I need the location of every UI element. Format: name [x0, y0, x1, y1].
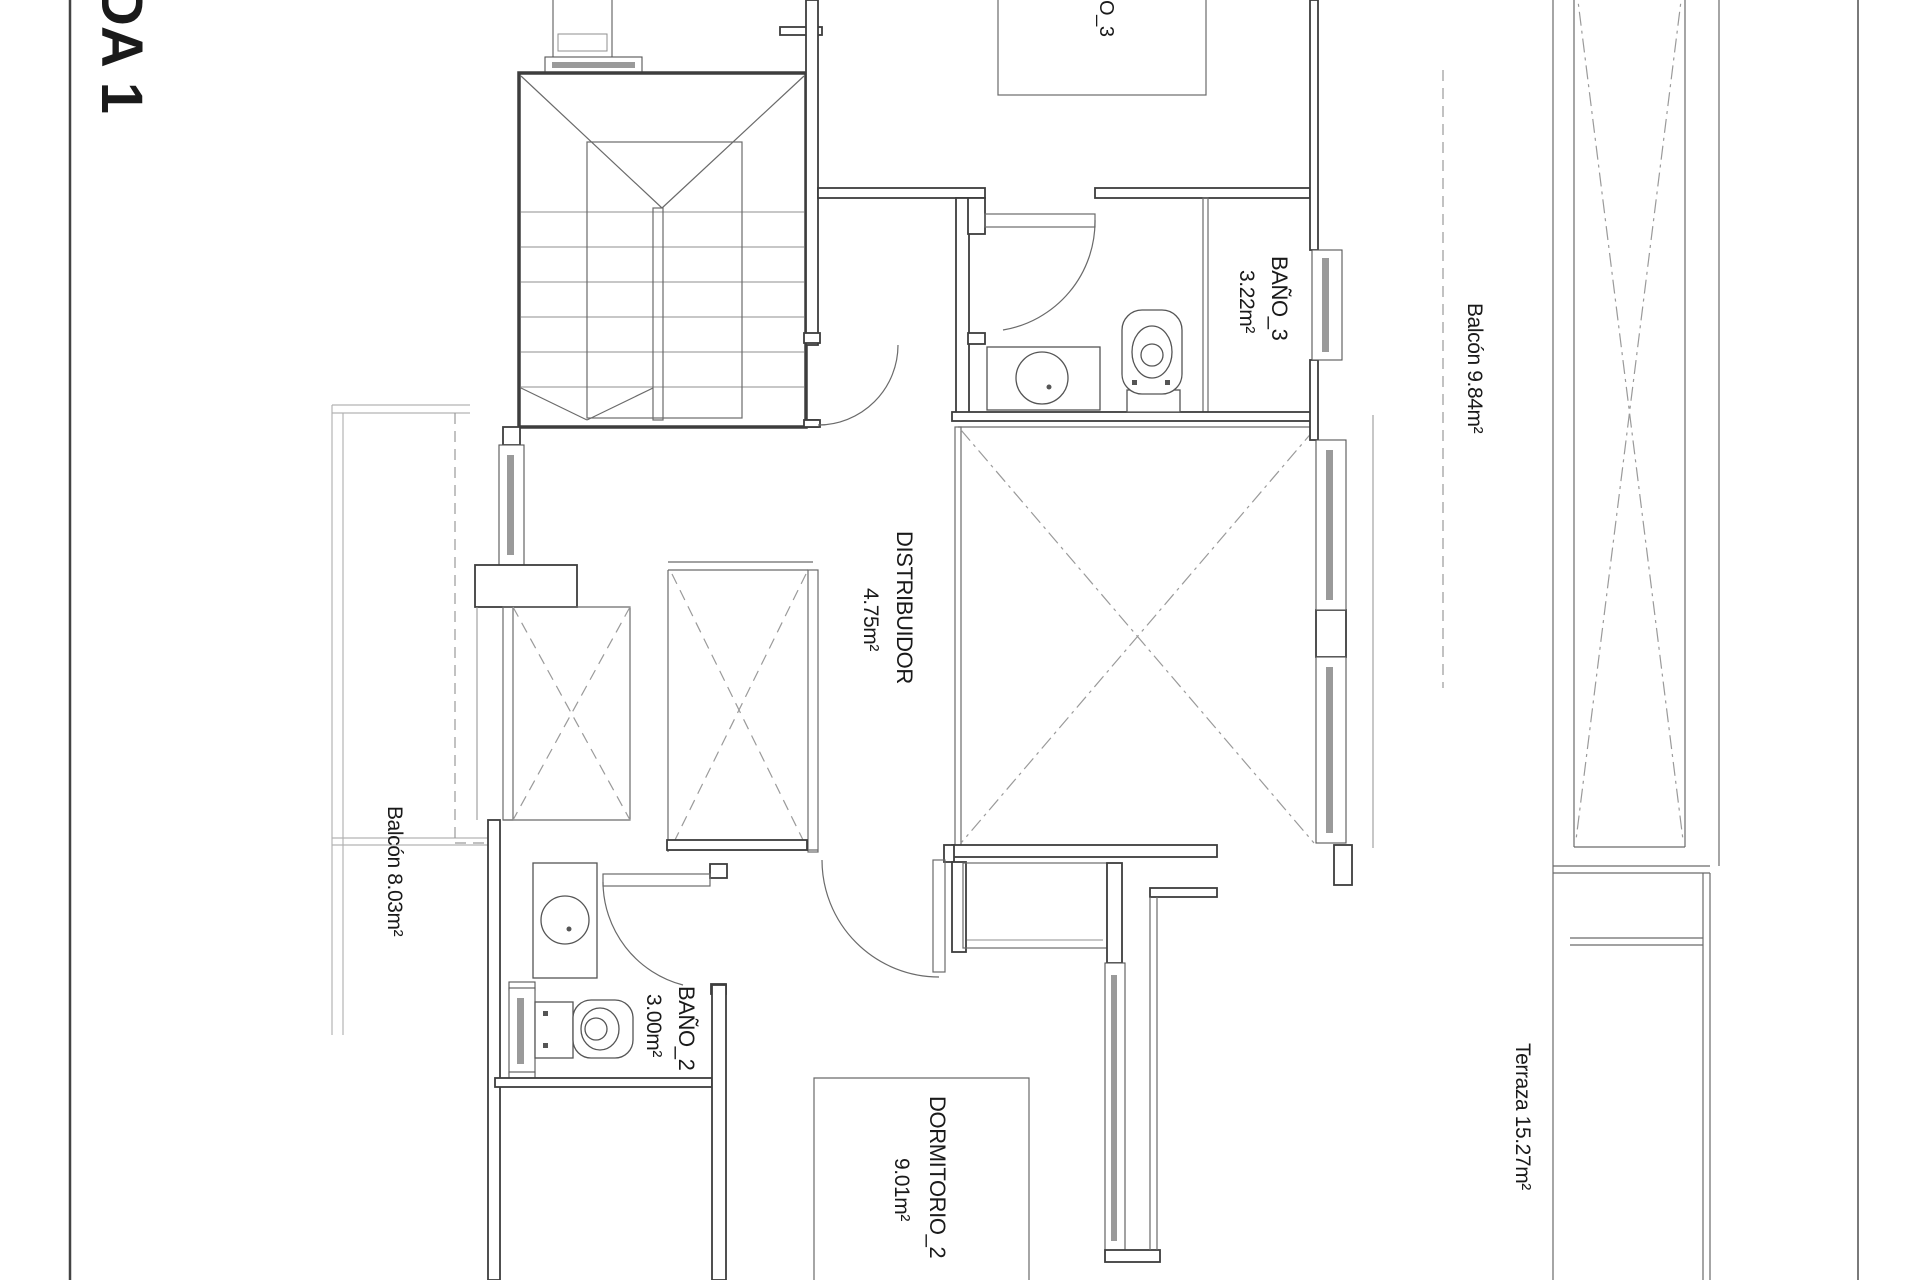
sink-icon — [987, 347, 1100, 410]
window-icon — [499, 445, 524, 565]
wall-segment — [818, 188, 985, 198]
staircase — [519, 0, 806, 427]
wardrobe-right — [668, 562, 818, 852]
balcon-left: Balcón 8.03m² — [332, 405, 490, 1035]
room-label-bano3: BAÑO_3 — [1267, 256, 1292, 341]
window-icon — [509, 982, 535, 1080]
door-swing-arc — [603, 882, 683, 985]
stair-diagonal — [521, 388, 587, 420]
dormitorio2: DORMITORIO_2 9.01m² — [814, 845, 1217, 1280]
wall-segment — [956, 198, 969, 420]
void-room — [952, 427, 1352, 885]
sink-icon — [533, 863, 597, 978]
room-label-dormitorio3: O_3 — [1095, 0, 1117, 37]
stair-void — [587, 142, 742, 418]
door-jamb — [968, 333, 985, 344]
closet-outline — [963, 863, 1107, 948]
door-jamb — [968, 198, 985, 234]
door-jamb — [804, 420, 820, 427]
wall-segment — [1310, 360, 1318, 440]
wall-segment — [806, 0, 818, 345]
door-leaf — [933, 860, 945, 972]
door-leaf — [985, 214, 1095, 227]
wardrobe-boxes — [475, 427, 818, 852]
door-swing-arc — [822, 860, 939, 977]
door-swing-arc — [818, 345, 898, 425]
bathroom3: BAÑO_3 3.22m² — [818, 188, 1317, 421]
wall-segment — [952, 862, 966, 952]
room-label-terraza: Terraza 15.27m² — [1511, 1043, 1534, 1190]
room-area-distribuidor: 4.75m² — [859, 588, 882, 651]
window-icon — [1312, 250, 1342, 360]
door-jamb — [804, 333, 820, 343]
room-label-distribuidor: DISTRIBUIDOR — [892, 531, 917, 684]
balcon-terraza-right: Balcón 9.84m² Terraza 15.27m² — [1463, 0, 1719, 1280]
wall-segment — [1310, 0, 1318, 250]
distribuidor: DISTRIBUIDOR 4.75m² — [859, 531, 917, 684]
bathroom2: BAÑO_2 3.00m² — [488, 820, 807, 1280]
wall-segment — [488, 820, 500, 1280]
wall-segment — [1150, 888, 1217, 897]
window-icon — [545, 57, 642, 73]
wall-block — [475, 565, 577, 607]
room-label-dormitorio2: DORMITORIO_2 — [925, 1096, 950, 1258]
toilet-icon — [1122, 310, 1182, 412]
wall-segment — [712, 985, 726, 1280]
window-icon — [1316, 440, 1346, 610]
central-walls — [780, 0, 898, 427]
partition-wall — [1203, 198, 1208, 412]
wall-segment — [1105, 1250, 1160, 1262]
window-icon — [1105, 963, 1125, 1253]
window-icon — [1316, 657, 1346, 843]
wall-pier — [1316, 610, 1346, 657]
room-area-dormitorio2: 9.01m² — [890, 1158, 913, 1221]
room-label-balcon-left: Balcón 8.03m² — [383, 806, 406, 937]
sheet-title: DA 1 — [89, 0, 154, 114]
dormitorio3: O_3 — [998, 0, 1206, 95]
door-leaf — [603, 874, 710, 886]
wall-segment — [1095, 188, 1310, 198]
wall-segment — [495, 1078, 712, 1087]
door-swing-arc — [1003, 220, 1095, 330]
duct-box — [558, 34, 607, 51]
stair-handrail — [653, 208, 663, 420]
wall-segment — [667, 840, 807, 850]
room-area-bano2: 3.00m² — [642, 994, 665, 1057]
wall-segment — [503, 427, 520, 445]
wall-segment — [952, 412, 1317, 421]
stair-diagonal — [587, 388, 653, 420]
room-label-balcon-right: Balcón 9.84m² — [1463, 303, 1486, 434]
door-jamb — [710, 864, 727, 878]
east-wall — [1310, 0, 1443, 848]
bed-outline — [814, 1078, 1029, 1280]
room-area-bano3: 3.22m² — [1235, 270, 1258, 333]
room-label-bano2: BAÑO_2 — [674, 986, 699, 1071]
wall-segment — [1107, 863, 1122, 963]
wall-segment — [955, 427, 961, 848]
floor-plan-sheet: DA 1 — [0, 0, 1920, 1280]
toilet-icon — [535, 1000, 633, 1058]
floor-plan-svg: DA 1 — [0, 0, 1920, 1280]
wardrobe-left — [503, 607, 630, 820]
wall-segment — [952, 845, 1217, 857]
wall-segment — [1334, 845, 1352, 885]
